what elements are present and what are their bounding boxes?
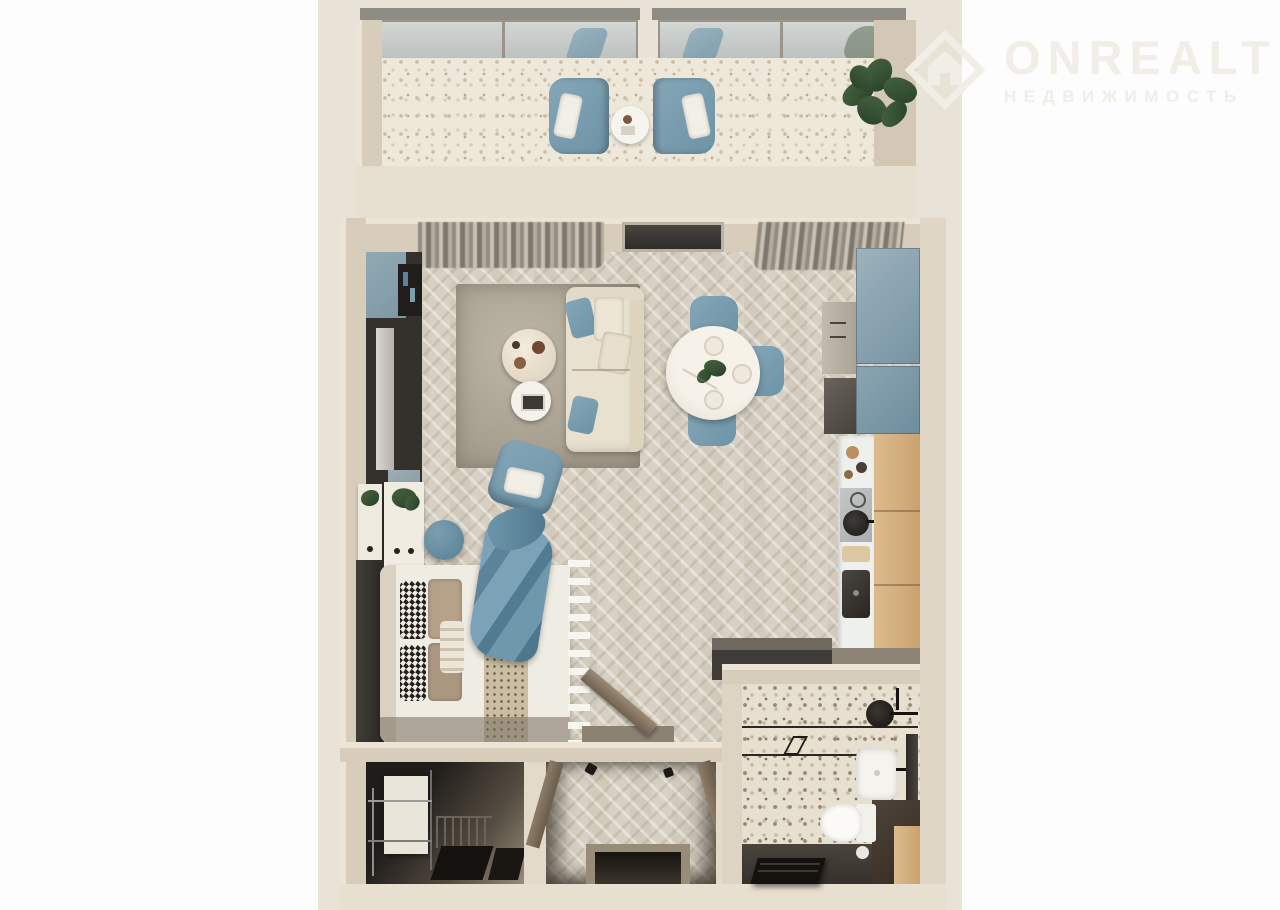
armchair-pillow xyxy=(553,92,584,140)
balcony-armchair-right xyxy=(653,78,715,154)
watermark-brand-text: ONREALT xyxy=(1004,34,1277,81)
dresser-knob xyxy=(408,548,414,554)
armchair-pillow xyxy=(681,92,712,140)
toilet-brush xyxy=(856,846,869,859)
sofa-backrest xyxy=(630,287,644,452)
bathroom-bench xyxy=(750,858,825,884)
bowl xyxy=(856,462,867,473)
pan xyxy=(843,510,869,536)
tableware xyxy=(532,341,545,354)
cooktop xyxy=(840,488,872,542)
table-decor xyxy=(623,115,632,124)
kitchen-upper-cabinet xyxy=(822,302,858,374)
sofa-pillow-blue-bottom xyxy=(567,395,600,436)
door-threshold xyxy=(582,726,674,742)
kitchen-wood-bar xyxy=(874,434,920,664)
fridge-blue-upper xyxy=(856,248,920,364)
tv-screen xyxy=(376,328,394,470)
wood-seam xyxy=(874,584,920,586)
tableware xyxy=(512,341,520,349)
drain xyxy=(874,770,880,776)
clothes-rack-bar xyxy=(368,840,432,842)
toilet-bowl xyxy=(820,804,862,842)
tv-shelf-books xyxy=(398,264,422,316)
balcony-side-table xyxy=(611,106,649,144)
dresser-right xyxy=(384,482,424,570)
kitchen-counter xyxy=(838,436,874,662)
cabinet-handle xyxy=(830,322,846,324)
bed-foot-shadow xyxy=(380,717,570,743)
entry-mat-well xyxy=(595,852,681,884)
shower-glass-line xyxy=(742,726,918,728)
bathroom-wood-cabinet xyxy=(894,826,920,884)
house-diamond-icon xyxy=(898,23,992,117)
bowl xyxy=(846,446,859,459)
top-window xyxy=(622,222,724,252)
wood-seam xyxy=(874,510,920,512)
balcony-left-wall xyxy=(356,20,382,168)
book xyxy=(403,272,408,286)
balcony-armchair-left xyxy=(549,78,609,154)
place-setting xyxy=(732,364,752,384)
cabinet-handle xyxy=(830,336,846,338)
right-wall xyxy=(920,218,946,890)
dresser-left xyxy=(358,484,382,570)
place-setting xyxy=(704,390,724,410)
book-on-table xyxy=(521,394,545,411)
pillow-houndstooth xyxy=(400,645,426,701)
hall-cabinet-top xyxy=(712,638,832,650)
coffee-table-white xyxy=(511,381,551,421)
chair-reflection xyxy=(680,28,725,62)
place-setting xyxy=(704,336,724,356)
kitchen-oven-dark xyxy=(824,378,856,434)
bathroom-left-wall xyxy=(722,684,742,884)
sink xyxy=(842,570,870,618)
dresser-knob xyxy=(367,546,373,552)
bottom-wall-main xyxy=(340,742,736,762)
faucet xyxy=(853,590,859,596)
dresser-knob xyxy=(394,548,400,554)
floor-mat xyxy=(430,846,493,880)
spandrel-wall xyxy=(356,166,916,218)
cutting-board xyxy=(842,546,870,562)
bathroom-top-wall xyxy=(722,664,920,684)
railing-bar-right xyxy=(652,8,906,20)
bowl xyxy=(844,470,853,479)
sofa-seam xyxy=(572,369,630,371)
tableware xyxy=(514,357,526,369)
railing-bar-left xyxy=(360,8,640,20)
ladder-shelf xyxy=(568,560,590,742)
bench-slat xyxy=(758,870,819,872)
washbasin xyxy=(856,748,898,800)
dining-table xyxy=(666,326,760,420)
outer-bottom-wall xyxy=(340,884,946,910)
watermark-logo: ONREALT НЕДВИЖИМОСТЬ xyxy=(898,22,1258,118)
pillow-bolster xyxy=(440,621,464,673)
book xyxy=(410,288,415,302)
fridge-blue-lower xyxy=(856,366,920,434)
shower-valve xyxy=(896,688,899,710)
floorplan-render: ONREALT НЕДВИЖИМОСТЬ xyxy=(0,0,1280,910)
balcony xyxy=(340,0,920,170)
pillow-houndstooth xyxy=(400,581,426,639)
coffee-table-marble xyxy=(502,329,556,383)
curtains-left xyxy=(418,222,604,268)
table-decor xyxy=(621,126,635,135)
sofa xyxy=(566,287,644,452)
closet-white-cabinet xyxy=(384,776,428,854)
entry-mat xyxy=(586,844,690,884)
chair-reflection xyxy=(564,28,609,62)
shower-arm xyxy=(890,712,918,715)
watermark-subtitle-text: НЕДВИЖИМОСТЬ xyxy=(1004,87,1277,107)
shoe-rack xyxy=(436,816,492,848)
burner xyxy=(850,492,866,508)
bench-slat xyxy=(760,863,821,865)
clothes-rack-rail xyxy=(430,770,432,870)
clothes-rack-bar xyxy=(368,800,432,802)
pouf-blue xyxy=(424,520,464,560)
mirror-edge xyxy=(906,734,918,800)
toilet xyxy=(820,802,876,844)
